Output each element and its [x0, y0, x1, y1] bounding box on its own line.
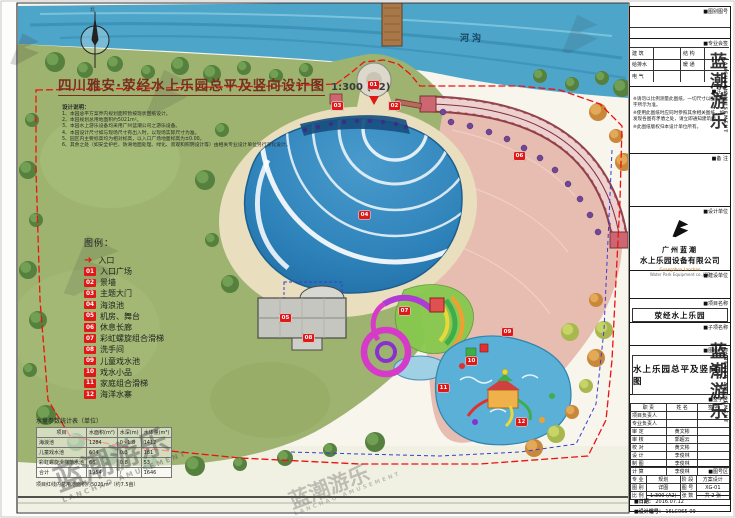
legend-item-number: 02 — [84, 279, 96, 288]
serial-label: ■设计编号： — [634, 509, 664, 515]
stats-row: 彩虹螺旋滑梯落水池66 0.853 — [37, 458, 172, 468]
plan-marker-11: 11 — [438, 384, 449, 392]
tb-sign-label: ■签字区 — [630, 395, 730, 403]
sheetinfo-row: 专 业 规划 阶 段 方案设计 — [631, 476, 730, 484]
stats-footnote: 项目红线内总用地面积约5021m²（约7.5亩） — [36, 481, 172, 488]
tb-drawing-label: ■图纸名称 — [630, 346, 730, 354]
legend-item-number: 01 — [84, 267, 96, 276]
stats-col-header: 项目 — [37, 428, 87, 438]
signature-row: 审 定 黄文彬 — [631, 428, 730, 436]
plan-marker-08: 08 — [303, 334, 314, 342]
tb-remark-box: ■备 注 — [630, 154, 730, 207]
legend-item: 03 主题大门 — [84, 288, 164, 299]
plan-marker-05: 05 — [280, 314, 291, 322]
signature-table: 职 责 姓 名 签 名 项目负责人 专业负责人 — [630, 403, 730, 476]
tb-sheetno-label: ■图别图号 — [630, 7, 730, 15]
legend-item-label: 戏水小品 — [100, 367, 132, 378]
river-label: 河沟 — [460, 31, 484, 44]
tb-sheetinfo-label: ■图号区 — [630, 467, 730, 475]
tb-serial-row: ■设计编号： 16LC065-09 — [630, 506, 730, 515]
plan-marker-06: 06 — [514, 152, 525, 160]
tb-drawing-name-box: ■图纸名称 水上乐园总平及竖向图 — [630, 346, 730, 395]
stats-col-header: 水深(m) — [117, 428, 141, 438]
legend-item-label: 入口广场 — [100, 266, 132, 277]
tb-builder-box: ■建设单位 — [630, 271, 730, 299]
sheetinfo-row: 图 别 详图 图 号 XG-01 — [631, 484, 730, 492]
signature-row: 校 对 黄文彬 — [631, 444, 730, 452]
plan-marker-02: 02 — [389, 102, 400, 110]
tb-project-label: ■项目名称 — [630, 299, 730, 307]
legend-item: 02 景墙 — [84, 277, 164, 288]
tb-notice-label: ■注 意 — [630, 87, 730, 95]
signature-row: 项目负责人 — [631, 412, 730, 420]
legend-item-label: 海浪池 — [100, 300, 124, 311]
tb-notice-item: ※使用此图纸时应同时参照其余相关图纸，如发现各图有矛盾之处，请立即通知建筑师。 — [630, 109, 730, 123]
legend-heading: 图例： — [84, 236, 164, 249]
water-stats: 水量参数统计表（单位） 项目水面积(m²)水深(m)水体量(m³) 海浪池128… — [36, 416, 172, 488]
legend-item: 01 入口广场 — [84, 266, 164, 277]
legend-item: 09 儿童戏水池 — [84, 356, 164, 367]
tb-subproject-box: ■子项名称 — [630, 323, 730, 346]
legend-item-number: 05 — [84, 312, 96, 321]
plan-marker-09: 09 — [502, 328, 513, 336]
plan-marker-10: 10 — [466, 357, 477, 365]
drawing-title-text: 四川雅安·荥经水上乐园总平及竖向设计图 — [58, 78, 325, 96]
tb-notice-item: ※请勿以比例测量此图纸，一切尺寸以图内数字所示为准。 — [630, 95, 730, 109]
stats-col-header: 水体量(m³) — [141, 428, 172, 438]
north-label: 北 — [90, 6, 95, 13]
legend-item-number: 06 — [84, 323, 96, 332]
title-block: ■图别图号 ■专业会签 建 筑 结 构 给排水 暖 通 电 气 ■注 意 ※请勿… — [629, 6, 731, 512]
legend-item: 07 彩虹螺旋组合滑梯 — [84, 333, 164, 344]
legend-item: 06 休息长廊 — [84, 322, 164, 333]
drawing-title: 四川雅安·荥经水上乐园总平及竖向设计图1:300 (A2) — [58, 74, 390, 94]
legend-item-label: 家庭组合滑梯 — [100, 378, 148, 389]
legend-item: 11 家庭组合滑梯 — [84, 378, 164, 389]
legend-item-number: 10 — [84, 368, 96, 377]
cosign-plumb: 给排水 — [630, 59, 654, 71]
legend-item-label: 海洋水寨 — [100, 389, 132, 400]
legend-item-number: 03 — [84, 290, 96, 299]
legend-entrance-label: 入口 — [98, 255, 114, 266]
cosign-elec: 电 气 — [630, 70, 654, 82]
tb-cosign-label: ■专业会签 — [630, 39, 730, 47]
legend-item-number: 07 — [84, 334, 96, 343]
drawing-name: 水上乐园总平及竖向图 — [632, 355, 728, 395]
legend-item: 10 戏水小品 — [84, 367, 164, 378]
tb-designer-label: ■设计单位 — [630, 207, 730, 215]
stats-row: 海浪池1284 0~1.81412 — [37, 438, 172, 448]
date-value: 2016.07.12 — [655, 499, 684, 505]
legend-item-number: 12 — [84, 390, 96, 399]
tb-sheetinfo-box: ■图号区 专 业 规划 阶 段 方案设计 图 别 详图 — [630, 467, 730, 496]
tb-project-box: ■项目名称 荥经水上乐园 — [630, 299, 730, 323]
entrance-arrow-icon: ➜ — [84, 256, 92, 266]
tb-signature-box: ■签字区 职 责 姓 名 签 名 项目负责人 — [630, 395, 730, 467]
legend-item: 04 海浪池 — [84, 300, 164, 311]
legend-item-label: 景墙 — [100, 277, 116, 288]
tb-notice-item: ※此图纸版权归本设计单位所有。 — [630, 123, 730, 132]
company-name-cn2: 水上乐园设备有限公司 — [630, 255, 730, 266]
legend: 图例： ➜ 入口 01 入口广场 02 景墙 03 主题大门 — [84, 236, 164, 400]
tb-notice-box: ■注 意 ※请勿以比例测量此图纸，一切尺寸以图内数字所示为准。※使用此图纸时应同… — [630, 87, 730, 154]
stats-row: 儿童戏水池604 0.3181 — [37, 448, 172, 458]
legend-item-number: 04 — [84, 301, 96, 310]
design-notes: 设计说明： 1、本园总平方案界内规划面积暂按现状图纸设计。2、本园规划总用地面积… — [62, 103, 307, 149]
stats-title: 水量参数统计表（单位） — [36, 416, 172, 425]
project-name: 荥经水上乐园 — [632, 308, 728, 322]
plan-marker-04: 04 — [359, 211, 370, 219]
tb-design-unit-box: ■设计单位 广州蓝潮 水上乐园设备有限公司 Guangzhou Lanchao … — [630, 207, 730, 271]
cosign-arch: 建 筑 — [630, 47, 654, 59]
stats-row: 合计1954 /1646 — [37, 468, 172, 478]
legend-item-label: 机房、舞台 — [100, 311, 140, 322]
design-notes-heading: 设计说明： — [62, 103, 307, 111]
tb-date-row: ■日期： 2016.07.12 — [630, 496, 730, 506]
drawing-sheet: 四川雅安·荥经水上乐园总平及竖向设计图1:300 (A2) 北 河沟 设计说明：… — [0, 0, 735, 518]
legend-item-label: 休息长廊 — [100, 322, 132, 333]
serial-value: 16LC065-09 — [665, 509, 695, 515]
tb-sheetno-box: ■图别图号 — [630, 7, 730, 39]
tb-subproject-label: ■子项名称 — [630, 323, 730, 331]
cosign-hvac: 暖 通 — [681, 59, 705, 71]
plan-marker-07: 07 — [399, 307, 410, 315]
cosign-struct: 结 构 — [681, 47, 705, 59]
stats-col-header: 水面积(m²) — [87, 428, 118, 438]
tb-builder-label: ■建设单位 — [630, 271, 730, 279]
legend-entrance-row: ➜ 入口 — [84, 255, 164, 266]
legend-item: 12 海洋水寨 — [84, 389, 164, 400]
design-note-item: 6、其余之处（如安全护栏、防滑地面处理、绿化、景观和照明设计等）由相关专业设计单… — [62, 143, 307, 149]
company-logo — [668, 217, 692, 241]
bridge — [382, 0, 402, 46]
plan-marker-01: 01 — [368, 81, 379, 89]
legend-item-number: 11 — [84, 379, 96, 388]
plan-marker-03: 03 — [332, 102, 343, 110]
company-name-cn1: 广州蓝潮 — [630, 245, 730, 255]
date-label: ■日期： — [634, 499, 654, 505]
legend-item-label: 主题大门 — [100, 288, 132, 299]
legend-item: 05 机房、舞台 — [84, 311, 164, 322]
legend-item-label: 彩虹螺旋组合滑梯 — [100, 333, 164, 344]
tb-remark-label: ■备 注 — [630, 154, 730, 162]
legend-item-label: 儿童戏水池 — [100, 356, 140, 367]
tb-cosign-grid: 建 筑 结 构 给排水 暖 通 电 气 — [630, 47, 730, 82]
legend-item: 08 洗手间 — [84, 344, 164, 355]
tb-cosign-box: ■专业会签 建 筑 结 构 给排水 暖 通 电 气 — [630, 39, 730, 87]
legend-item-number: 08 — [84, 346, 96, 355]
stats-table: 项目水面积(m²)水深(m)水体量(m³) 海浪池1284 0~1.81412 … — [36, 427, 172, 478]
legend-item-number: 09 — [84, 357, 96, 366]
signature-row: 设 计 李俊林 — [631, 452, 730, 460]
signature-row: 审 核 郭超云 — [631, 436, 730, 444]
drawing-scale: 1:300 (A2) — [331, 82, 390, 93]
plan-marker-12: 12 — [516, 418, 527, 426]
signature-row: 专业负责人 — [631, 420, 730, 428]
legend-item-label: 洗手间 — [100, 344, 124, 355]
